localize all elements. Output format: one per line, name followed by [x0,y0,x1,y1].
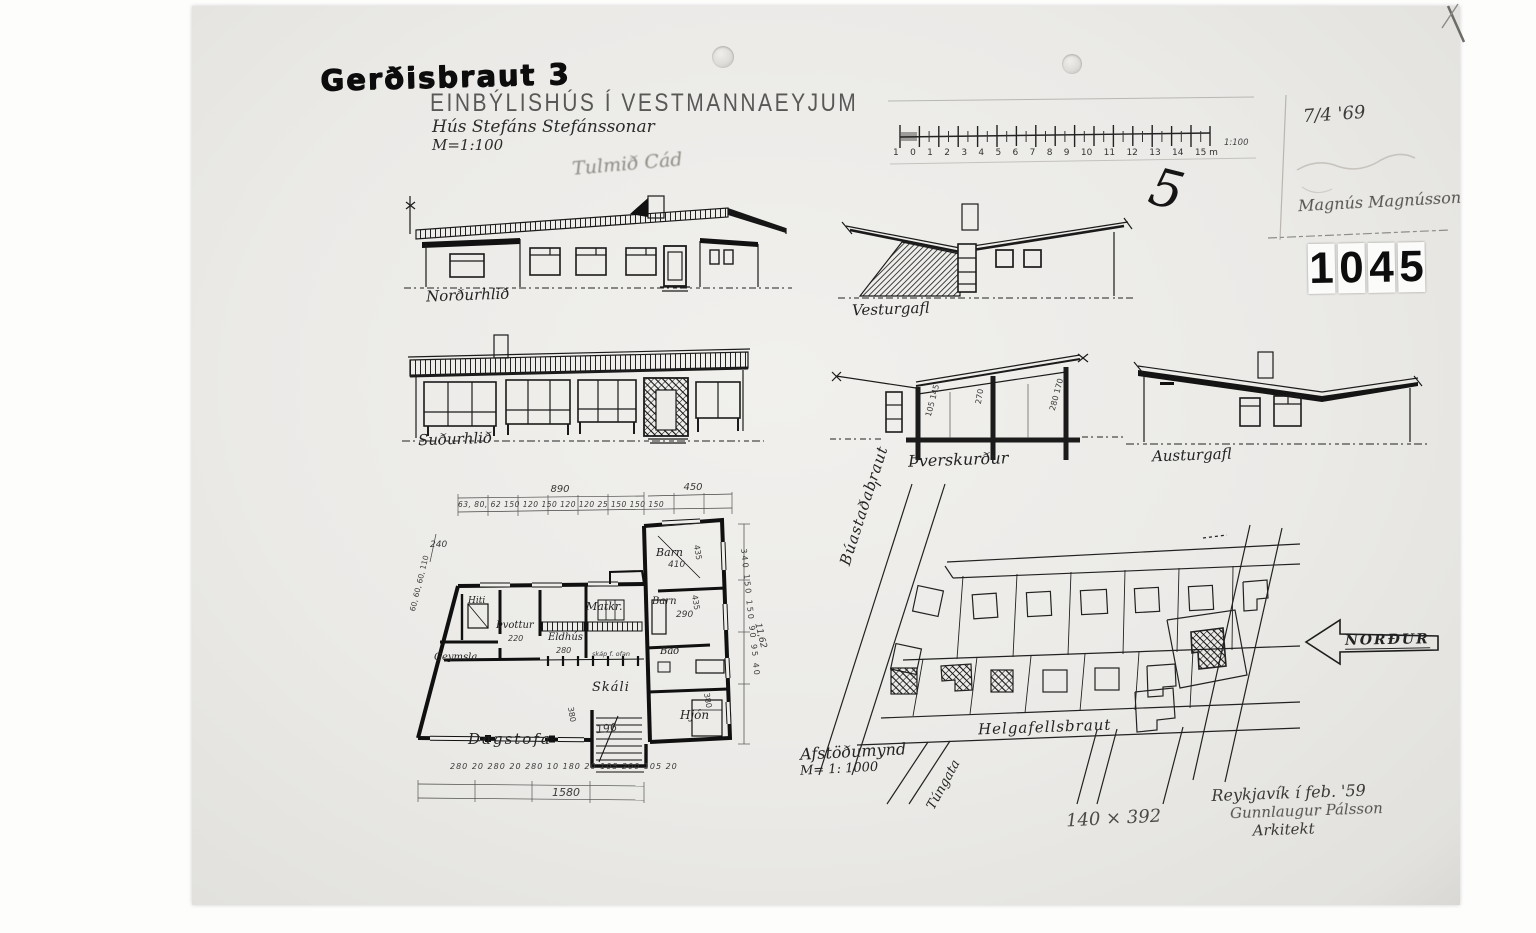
scale-ratio-label: 1:100 [1224,138,1249,148]
stamp-digit: 4 [1368,243,1396,293]
room-thvottur-dim: 220 [508,634,523,643]
stamp-digit: 0 [1338,243,1366,293]
room-barn2-dim: 290 [676,610,693,620]
room-barn1: Barn [656,546,683,559]
room-skali: Skáli [592,680,630,695]
stamp-digit: 5 [1398,242,1426,292]
scale-tick-label: 1 [927,148,933,158]
hole-punch-right [1062,54,1082,74]
stamp-digit: 1 [1308,244,1336,294]
plan-dim-240: 240 [430,540,447,550]
elevation-north-label: Norðurhlið [426,285,510,306]
room-thvottur: Þvottur [496,620,534,631]
scale-tick-label: 15 m [1195,148,1218,158]
plan-dim-bottom-sub: 280 20 280 20 280 10 180 20 105 200 105 … [450,762,740,771]
main-title: EINBÝLISHÚS Í VESTMANNAEYJUM [430,90,858,119]
scale-tick-label: 9 [1064,148,1070,158]
room-eldhus-dim: 280 [556,646,571,655]
room-barn1-dim: 410 [668,560,685,570]
north-arrow-label: NORÐUR [1345,631,1430,649]
elevation-south-label: Suðurhlið [418,429,493,450]
room-geymsla: Geymsla [434,652,477,663]
scale-tick-label: 5 [995,148,1001,158]
scale-note: M=1:100 [432,136,503,154]
sheet-number-stamp: 1045 [1308,242,1426,294]
room-hiti: Hiti [468,596,485,606]
plan-dim-total: 1580 [552,786,580,799]
site-plan-caption: Afstöðumynd M= 1: 1000 [800,742,906,776]
scale-tick-label: 11 [1104,148,1115,158]
room-hjon: Hjón [680,708,709,722]
floor-plan-drawing [400,472,772,804]
scale-tick-label: 2 [944,148,950,158]
scale-bar: 10123456789101112131415 m 1:100 [888,96,1258,168]
room-dagstofa: Dagstofa [468,730,552,748]
elevation-east-label: Austurgafl [1152,445,1232,466]
date-note: 7/4 '69 [1302,102,1366,127]
room-matkr: Matkr. [586,600,622,613]
scale-tick-label: 3 [961,148,967,158]
room-barn2: Barn [652,596,677,607]
elevation-east-drawing [1122,346,1434,463]
scale-tick-label: 10 [1081,148,1092,158]
scale-tick-label: 0 [910,148,916,158]
scale-tick-label: 14 [1172,148,1183,158]
scale-tick-label: 7 [1030,148,1036,158]
section-label: Þverskurður [908,448,1009,470]
scan-corner-mark [1420,2,1480,52]
room-eldhus: Eldhús [548,632,583,643]
scanned-drawing-sheet: Gerðisbraut 3 EINBÝLISHÚS Í VESTMANNAEYJ… [0,0,1536,933]
plan-dim-890: 890 [530,484,590,495]
scale-tick-label: 1 [893,148,899,158]
subtitle: Hús Stefáns Stefánssonar [432,117,655,137]
scale-tick-label: 6 [1013,148,1019,158]
scale-bar-tick-labels: 10123456789101112131415 m [893,148,1218,158]
scale-tick-label: 12 [1126,148,1137,158]
scale-tick-label: 8 [1047,148,1053,158]
architect-block: Reykjavík í feb. '59 Gunnlaugur Pálsson … [1211,780,1384,841]
scale-tick-label: 4 [978,148,984,158]
hole-punch-left [712,46,734,68]
room-matkr-note: skáp f. ofan [592,650,630,658]
elevation-west-label: Vesturgafl [852,299,930,320]
plan-dim-top-sub: 63, 80, 62 150 120 150 120 120 25 150 15… [458,500,738,509]
room-bad: Bað [660,646,679,657]
plan-dim-450: 450 [668,482,718,493]
